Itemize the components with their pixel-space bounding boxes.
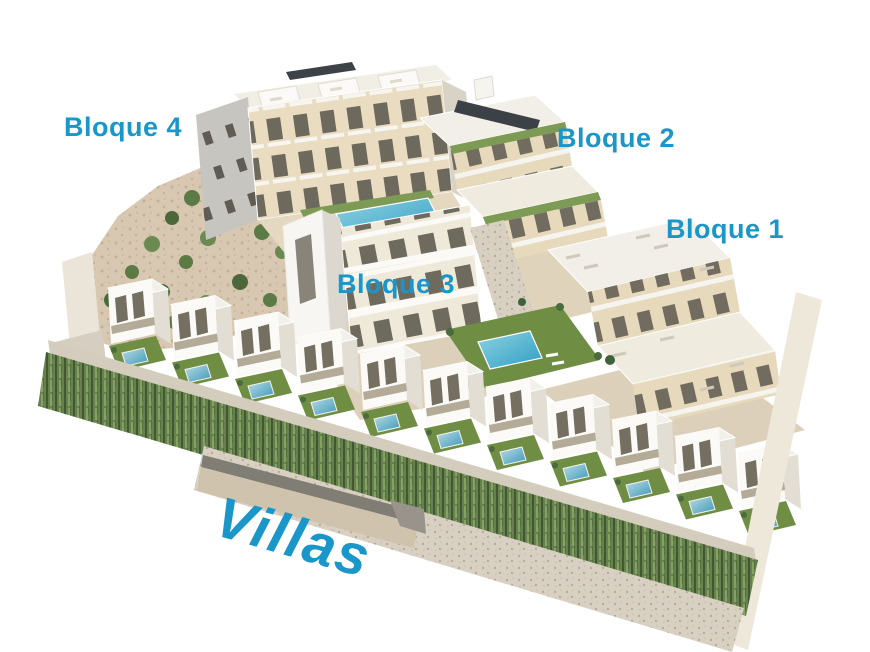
villa [297,329,360,421]
villa [108,279,171,371]
villa [171,296,234,388]
villa [612,411,675,503]
villa [549,395,612,487]
label-bloque-3: Bloque 3 [337,269,455,300]
villa [486,378,549,470]
villa [675,428,738,520]
solar-panels [286,62,356,80]
development-3d-render [0,0,870,652]
label-bloque-2: Bloque 2 [557,123,675,154]
label-bloque-4: Bloque 4 [64,112,182,143]
villa [423,362,486,454]
label-bloque-1: Bloque 1 [666,214,784,245]
villa [234,312,297,404]
villa [360,345,423,437]
site-plan-render: Bloque 4 Bloque 2 Bloque 1 Bloque 3 Vill… [0,0,870,652]
